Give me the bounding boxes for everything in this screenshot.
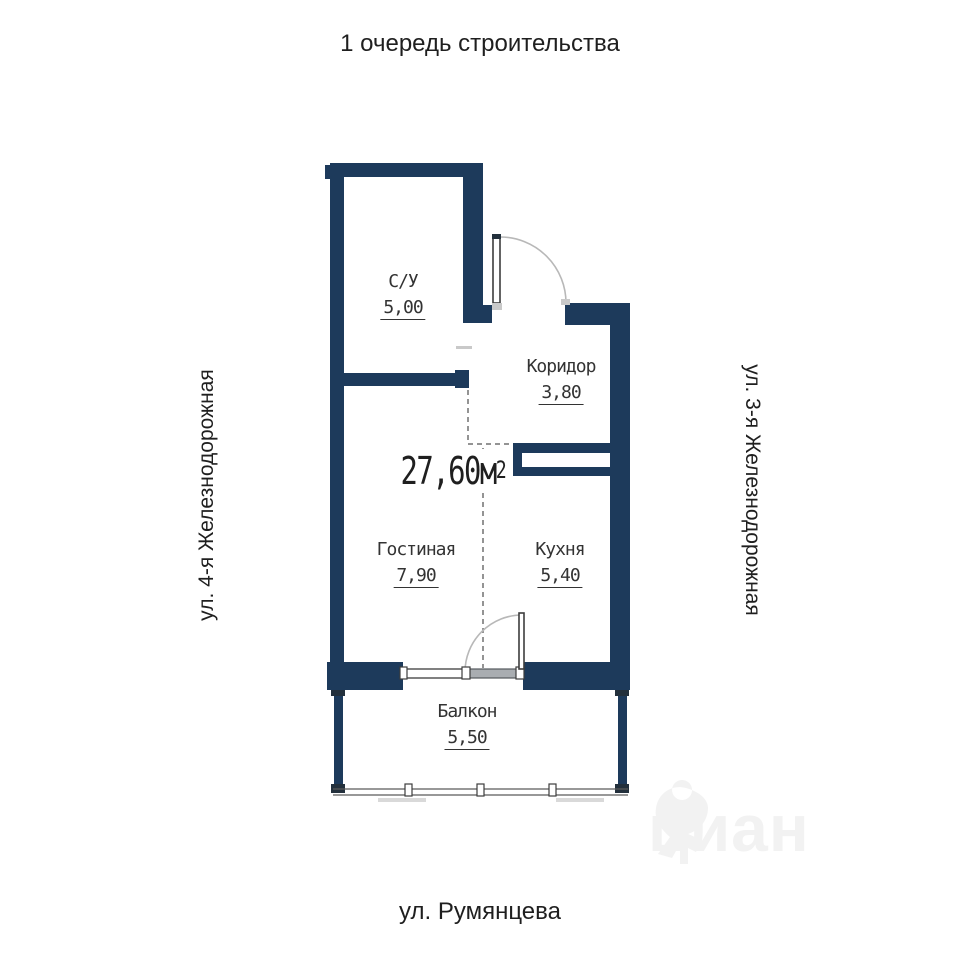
room-name: Гостиная	[377, 540, 456, 561]
room-area: 7,90	[393, 566, 438, 589]
cian-watermark-text: циан	[648, 795, 810, 861]
vent-shaft	[513, 443, 610, 476]
construction-stage-label: 1 очередь строительства	[340, 30, 620, 58]
room-name: Коридор	[527, 357, 596, 378]
room-name: С/У	[380, 272, 425, 293]
street-label-bottom: ул. Румянцева	[399, 898, 561, 926]
room-area: 3,80	[538, 383, 583, 406]
balcony-railing	[333, 784, 628, 802]
room-label-bathroom: С/У 5,00	[380, 272, 425, 320]
cian-watermark: циан	[648, 778, 908, 878]
zone-divider-dashes	[468, 390, 513, 668]
room-name: Кухня	[535, 540, 584, 561]
street-label-left: ул. 4-я Железнодорожная	[195, 369, 219, 621]
living-room-window	[400, 667, 466, 679]
entrance-door	[492, 234, 570, 310]
floorplan-page: 1 очередь строительства ул. 4-я Железнод…	[0, 0, 960, 960]
room-name: Балкон	[437, 702, 496, 723]
room-label-kitchen: Кухня 5,40	[535, 540, 584, 588]
room-area: 5,40	[537, 566, 582, 589]
total-area-value: 27,60м	[401, 449, 496, 493]
room-label-balcony: Балкон 5,50	[437, 702, 496, 750]
total-area-superscript: 2	[496, 456, 507, 484]
room-area: 5,50	[444, 728, 489, 751]
room-area: 5,00	[380, 298, 425, 321]
room-label-corridor: Коридор 3,80	[527, 357, 596, 405]
room-label-living-room: Гостиная 7,90	[377, 540, 456, 588]
total-area-label: 27,60м2	[399, 449, 508, 493]
balcony-door	[462, 613, 524, 679]
street-label-right: ул. 3-я Железнодорожная	[740, 364, 764, 616]
